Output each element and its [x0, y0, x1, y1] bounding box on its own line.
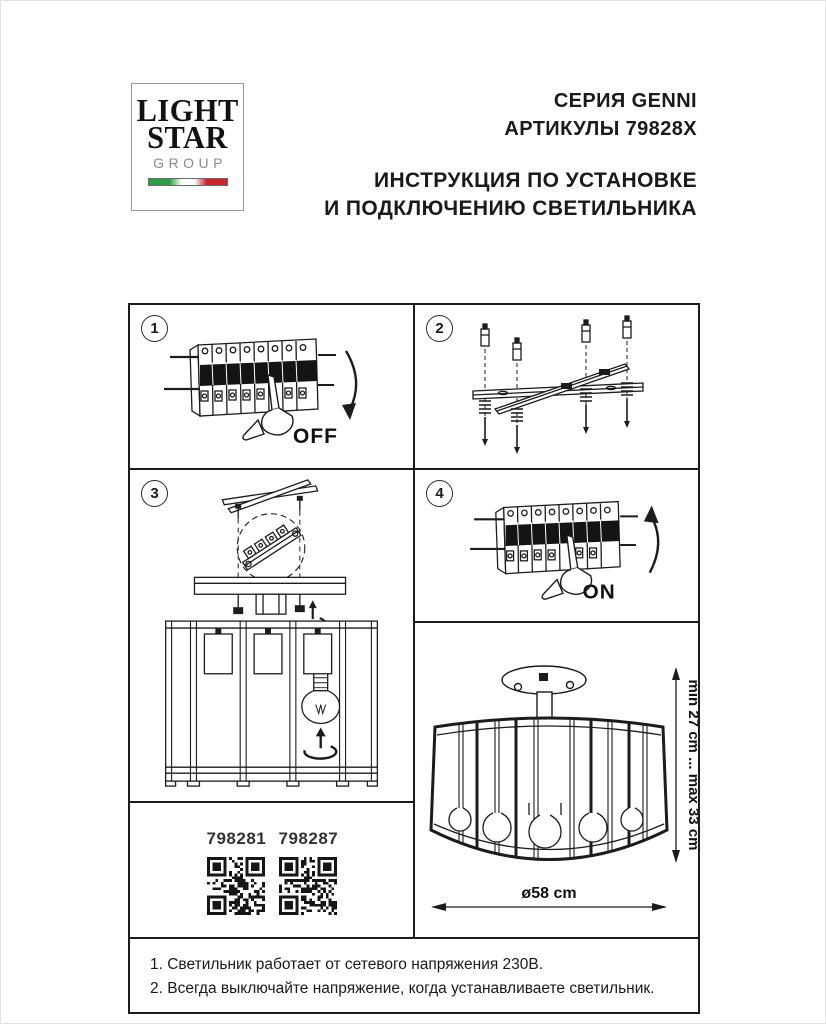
step-panel-2: 2 [415, 305, 698, 470]
step-number-badge: 3 [141, 480, 168, 507]
mounting-bars-drawing [415, 305, 698, 468]
arrow-down-icon [346, 351, 356, 409]
step-number-badge: 4 [426, 480, 453, 507]
step-number-badge: 1 [141, 315, 168, 342]
qr-label-1: 798281 [207, 829, 265, 849]
header: СЕРИЯ GENNI АРТИКУЛЫ 79828X ИНСТРУКЦИЯ П… [324, 87, 697, 223]
lightstar-logo: LIGHT STAR GROUP [131, 83, 244, 211]
fixture-dimensions-panel: min 27 cm ... max 33 cm ø58 cm [415, 623, 698, 937]
italian-flag-icon [148, 178, 228, 186]
breaker-off-drawing: OFF [130, 305, 413, 468]
step-number-badge: 2 [426, 315, 453, 342]
assembly-drawing [130, 470, 413, 801]
on-label: ON [583, 580, 616, 603]
page-title-line2: И ПОДКЛЮЧЕНИЮ СВЕТИЛЬНИКА [324, 195, 697, 223]
page-title: ИНСТРУКЦИЯ ПО УСТАНОВКЕ И ПОДКЛЮЧЕНИЮ СВ… [324, 167, 697, 223]
page-title-line1: ИНСТРУКЦИЯ ПО УСТАНОВКЕ [324, 167, 697, 195]
instruction-grid: 1 [128, 303, 700, 939]
step-panel-4: 4 [415, 470, 698, 623]
dimension-height-label: min 27 cm ... max 33 cm [685, 680, 698, 851]
dimension-diameter-label: ø58 cm [521, 885, 576, 902]
step-panel-3: 3 [130, 470, 415, 803]
step-panel-1: 1 [130, 305, 415, 470]
note-line-2: 2. Всегда выключайте напряжение, когда у… [150, 977, 684, 1001]
instruction-page: LIGHT STAR GROUP СЕРИЯ GENNI АРТИКУЛЫ 79… [0, 0, 826, 1024]
arrow-up-icon [650, 517, 658, 572]
breaker-on-drawing: ON [415, 470, 698, 621]
logo-word-star: STAR [147, 124, 228, 151]
articles-title: АРТИКУЛЫ 79828X [324, 115, 697, 143]
notes-box: 1. Светильник работает от сетевого напря… [128, 937, 700, 1014]
height-dimension [672, 667, 680, 863]
qr-panel: 798281 798287 [130, 803, 415, 937]
note-line-1: 1. Светильник работает от сетевого напря… [150, 953, 684, 977]
series-title: СЕРИЯ GENNI [324, 87, 697, 115]
logo-word-group: GROUP [148, 155, 227, 171]
qr-label-2: 798287 [279, 829, 337, 849]
qr-code-image-1 [207, 857, 265, 915]
diameter-dimension [431, 903, 667, 911]
lamp-sockets [204, 628, 331, 674]
off-label: OFF [293, 425, 338, 448]
qr-code-image-2 [279, 857, 337, 915]
terminal-block-detail [238, 520, 301, 570]
fixture-dimensions-drawing: min 27 cm ... max 33 cm ø58 cm [415, 623, 698, 937]
